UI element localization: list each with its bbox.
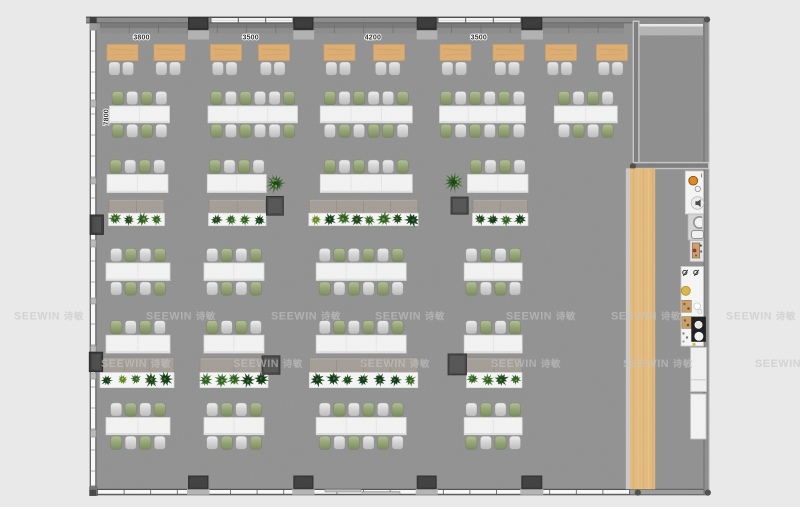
svg-text:SEEWIN 诗敏: SEEWIN 诗敏 <box>506 311 576 323</box>
svg-text:SEEWIN 诗敏: SEEWIN 诗敏 <box>623 358 693 370</box>
svg-text:SEEWIN 诗敏: SEEWIN 诗敏 <box>726 311 796 323</box>
svg-text:SEEWIN 诗敏: SEEWIN 诗敏 <box>755 358 800 370</box>
svg-text:SEEWIN 诗敏: SEEWIN 诗敏 <box>360 358 430 370</box>
svg-text:SEEWIN 诗敏: SEEWIN 诗敏 <box>271 311 341 323</box>
svg-text:SEEWIN 诗敏: SEEWIN 诗敏 <box>101 358 171 370</box>
svg-text:SEEWIN 诗敏: SEEWIN 诗敏 <box>14 311 84 323</box>
svg-text:SEEWIN 诗敏: SEEWIN 诗敏 <box>491 358 561 370</box>
svg-text:SEEWIN 诗敏: SEEWIN 诗敏 <box>233 358 303 370</box>
svg-text:SEEWIN 诗敏: SEEWIN 诗敏 <box>375 311 445 323</box>
svg-text:SEEWIN 诗敏: SEEWIN 诗敏 <box>611 311 681 323</box>
svg-text:SEEWIN 诗敏: SEEWIN 诗敏 <box>146 311 216 323</box>
